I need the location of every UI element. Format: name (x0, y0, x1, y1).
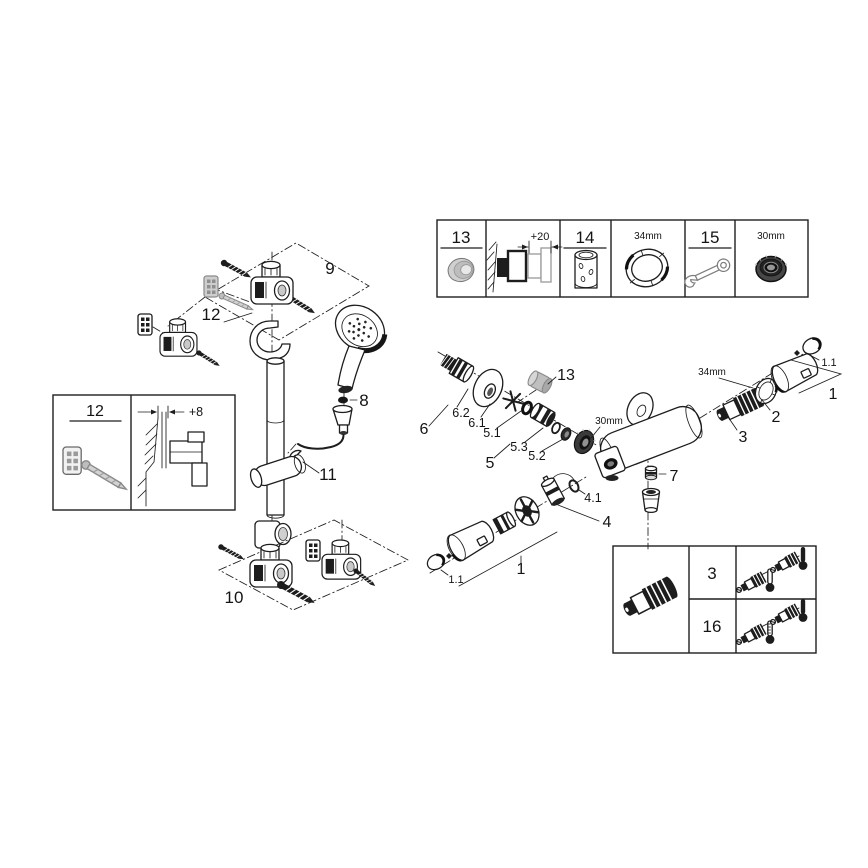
ring-34mm-icon (621, 244, 672, 292)
handle-screw (794, 350, 800, 356)
bushing (559, 426, 573, 442)
cap-icon (445, 256, 476, 285)
plug-and-screw-icon (63, 447, 128, 493)
plug-box-offset: +8 (189, 405, 203, 419)
orientation-row-3-icons (734, 547, 807, 596)
screw-icon (195, 349, 221, 368)
label-thermo-cartridge: 3 (739, 429, 748, 446)
parts-diagram: 13 +20 14 34mm 15 (0, 0, 868, 868)
label-aquadimmer: 4 (603, 514, 612, 531)
wall-extension-detail: +20 (487, 231, 562, 292)
wall-plug-icon (138, 314, 152, 335)
screw-icon (217, 543, 245, 561)
rail-bracket-bottom (250, 544, 292, 587)
plug-detail-box: 12 +8 (53, 395, 235, 510)
rail-bracket-top (251, 261, 293, 304)
label-bottom-mount-group: 10 (225, 588, 244, 607)
handle2-grip (443, 517, 498, 564)
orientation-row-3: 3 (707, 564, 716, 583)
aquadimmer (539, 474, 566, 508)
o-ring (551, 422, 562, 435)
cartridge-icon (620, 575, 680, 621)
rail-bracket-spare (160, 319, 197, 356)
label-handle2: 1 (517, 561, 526, 578)
top-box-label-15: 15 (701, 228, 720, 247)
top-box-size-34mm: 34mm (634, 231, 662, 242)
label-slide-holder: 11 (319, 465, 337, 484)
union-nut-30mm (570, 425, 599, 457)
label-stop-ring: 2 (772, 409, 781, 426)
hose-seal (338, 397, 348, 404)
top-callout-box: 13 +20 14 34mm 15 (437, 220, 808, 297)
label-bushing: 5.2 (528, 449, 545, 463)
label-wall-plug: 12 (202, 305, 221, 324)
hand-shower (327, 296, 394, 394)
dimmer-o-ring (568, 479, 581, 493)
extension-sleeve-icon (575, 251, 597, 289)
top-box-label-14: 14 (576, 228, 595, 247)
top-box-dimension: +20 (531, 231, 550, 243)
label-check-valve-group: 5 (486, 455, 495, 472)
label-seal: 8 (359, 391, 368, 410)
label-outlet-nipple: 7 (670, 468, 679, 485)
top-box-label-13: 13 (452, 228, 471, 247)
wrench-icon (682, 257, 731, 289)
outlet-nipple (646, 466, 657, 479)
plug-box-part: 12 (86, 403, 104, 420)
shower-rail-assembly: 9 12 11 (138, 243, 408, 610)
s-union (439, 352, 476, 384)
shower-rail (267, 358, 284, 518)
gray-screw-icon (218, 292, 254, 312)
label-cap: 13 (557, 367, 575, 384)
label-handle-cap: 1.1 (821, 357, 836, 369)
label-union-group: 6 (420, 421, 429, 438)
top-box-size-30mm: 30mm (757, 231, 785, 242)
label-wall-mount-group: 9 (325, 259, 334, 278)
thermostat-valve-assembly: 13 30mm 7 3 34mm (420, 335, 841, 586)
screw-icon (220, 259, 253, 280)
wall-plug-icon (306, 540, 320, 561)
check-valve (529, 402, 558, 428)
label-s-union: 6.2 (452, 406, 469, 420)
screw-icon (276, 580, 317, 607)
orientation-row-16: 16 (703, 617, 722, 636)
cartridge-orientation-box: 3 16 (613, 546, 816, 653)
handle-adapter (493, 511, 517, 534)
wall-offset-detail: +8 (138, 405, 207, 506)
handle2-cap (425, 551, 448, 572)
label-seal-51: 5.1 (483, 426, 500, 440)
escutcheon (468, 365, 509, 412)
label-dimmer-seal: 4.1 (584, 491, 601, 505)
label-ring-size: 34mm (698, 367, 726, 378)
label-nut-size: 30mm (595, 416, 623, 427)
wall-plug-icon (204, 276, 218, 297)
label-handle: 1 (829, 386, 838, 403)
parts-diagram-page: 13 +20 14 34mm 15 (0, 0, 868, 868)
handle-cap (800, 335, 824, 357)
label-handle2-cap: 1.1 (448, 574, 463, 586)
outlet-gasket (606, 475, 619, 481)
orientation-row-16-icons (734, 599, 807, 648)
nut-30mm-icon (755, 256, 787, 282)
handle2-screw (446, 553, 452, 559)
glass-holder-hook (250, 321, 290, 360)
hose-connector (643, 489, 660, 513)
